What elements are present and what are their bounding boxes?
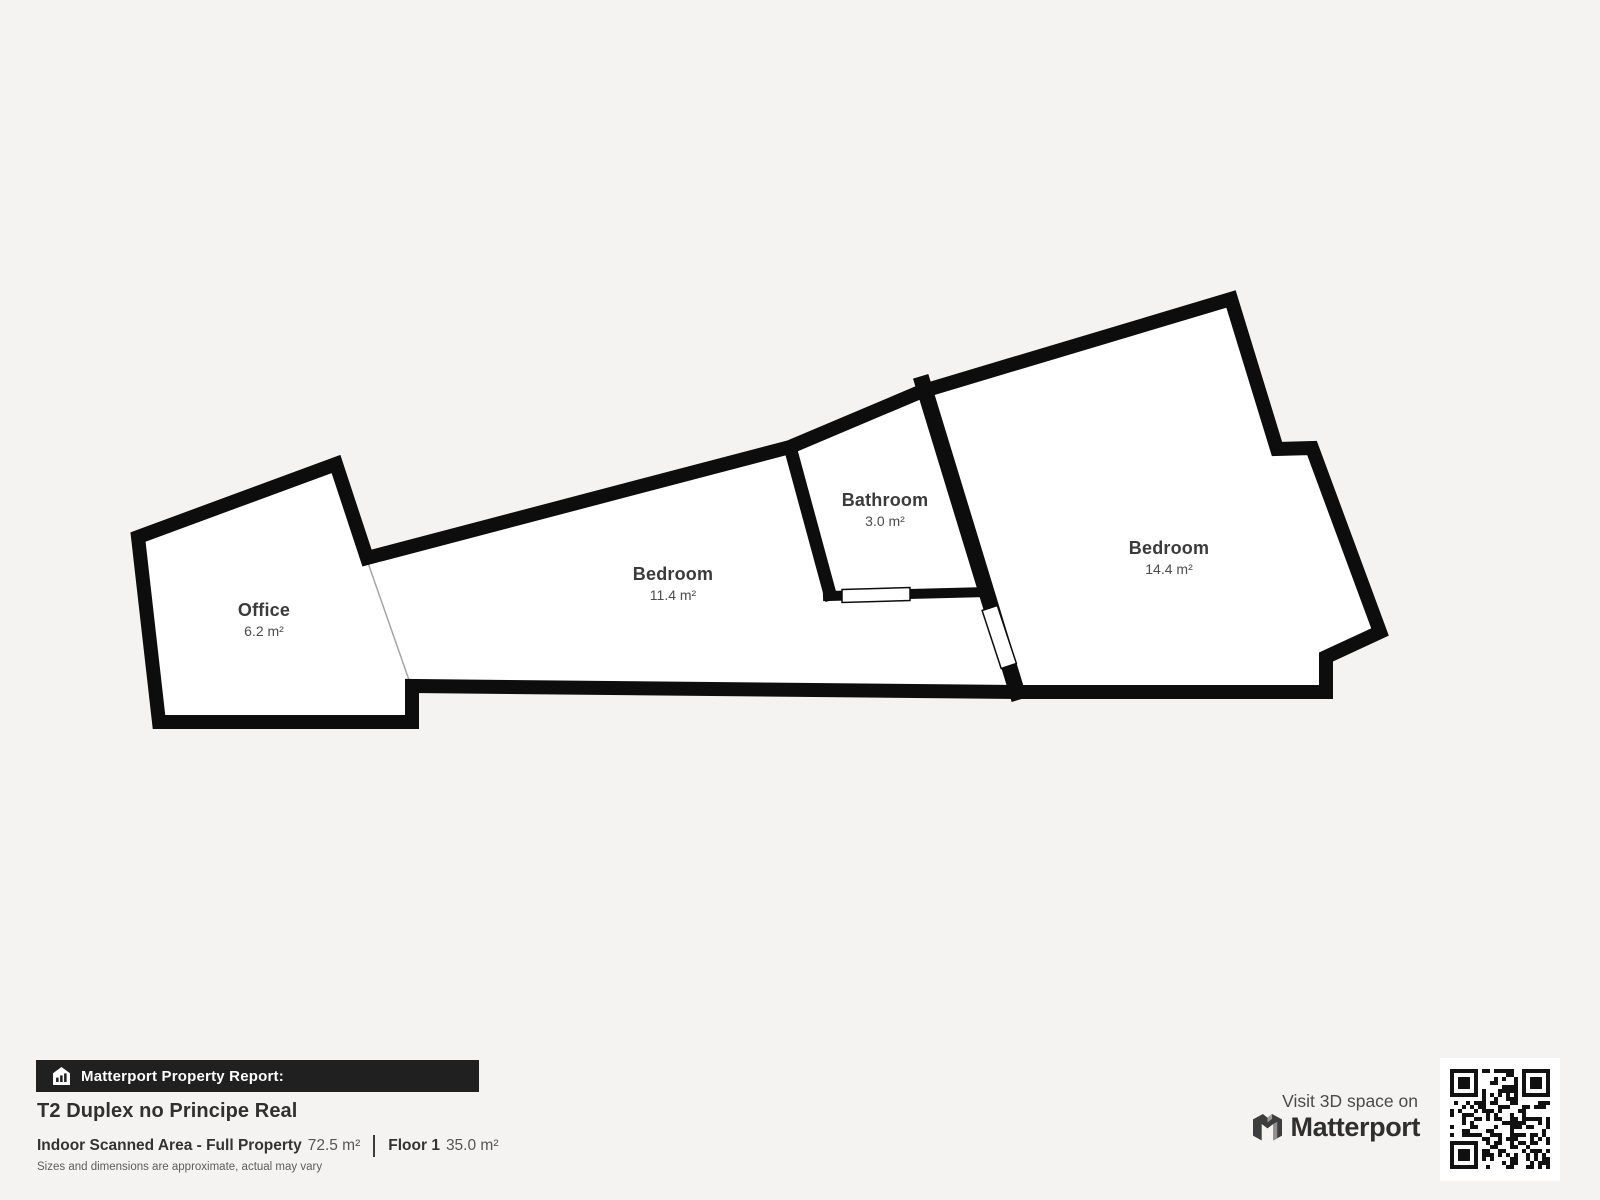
- stats-divider: [373, 1135, 375, 1157]
- scanned-area-label: Indoor Scanned Area - Full Property: [37, 1137, 302, 1155]
- bathroom-door-opening: [842, 588, 910, 603]
- area-stats: Indoor Scanned Area - Full Property 72.5…: [37, 1135, 499, 1157]
- matterport-logo: Matterport: [1253, 1112, 1421, 1143]
- disclaimer-text: Sizes and dimensions are approximate, ac…: [37, 1161, 322, 1173]
- property-report-page: Office 6.2 m² Bedroom 11.4 m² Bathroom 3…: [0, 0, 1600, 1200]
- visit-3d-text: Visit 3D space on: [1282, 1091, 1418, 1112]
- banner-label: Matterport Property Report:: [81, 1068, 284, 1085]
- report-banner: Matterport Property Report:: [36, 1060, 479, 1092]
- report-title: T2 Duplex no Principe Real: [37, 1100, 297, 1123]
- scanned-area-value: 72.5 m²: [308, 1137, 361, 1155]
- office-floor: [137, 462, 413, 718]
- qr-code: [1440, 1058, 1560, 1181]
- matterport-wordmark: Matterport: [1291, 1112, 1421, 1143]
- matterport-m-icon: [1253, 1114, 1282, 1141]
- house-report-icon: [53, 1067, 70, 1085]
- floor-value: 35.0 m²: [446, 1137, 499, 1155]
- floor-plan: [0, 0, 1600, 1200]
- floor-label: Floor 1: [388, 1137, 440, 1155]
